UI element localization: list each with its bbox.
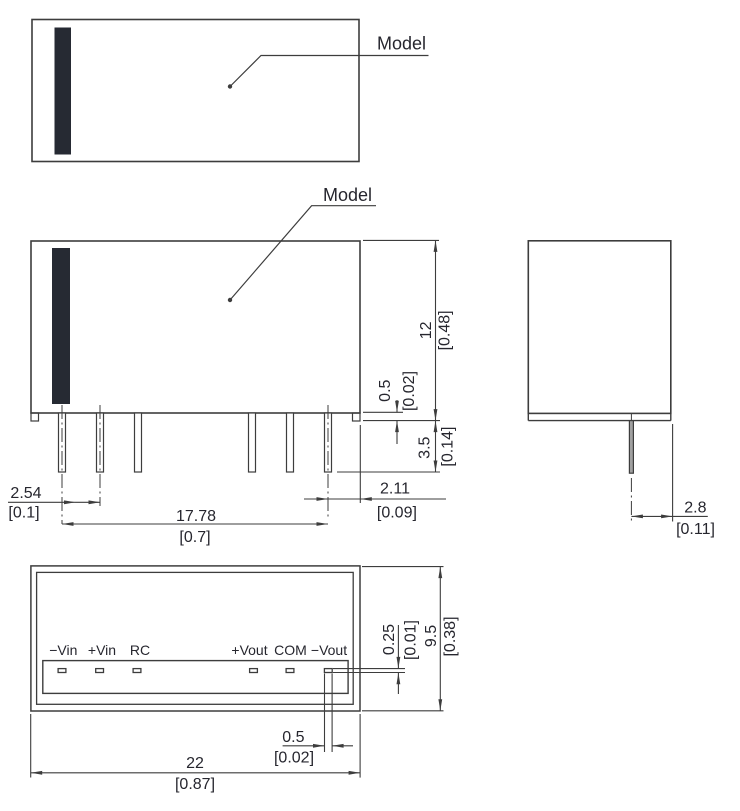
svg-text:12: 12 [418, 321, 435, 339]
svg-text:9.5: 9.5 [423, 625, 440, 647]
svg-text:17.78: 17.78 [176, 508, 216, 525]
svg-text:[0.01]: [0.01] [402, 620, 419, 660]
svg-text:2.54: 2.54 [10, 485, 41, 502]
svg-text:[0.87]: [0.87] [175, 776, 215, 793]
svg-text:2.8: 2.8 [684, 500, 706, 517]
svg-text:0.5: 0.5 [282, 729, 304, 746]
svg-text:+Vin: +Vin [88, 642, 116, 658]
svg-text:[0.02]: [0.02] [274, 750, 314, 767]
svg-text:[0.14]: [0.14] [440, 427, 457, 467]
svg-text:[0.11]: [0.11] [676, 521, 715, 538]
svg-text:−Vout: −Vout [311, 642, 347, 658]
svg-text:COM: COM [274, 642, 307, 658]
svg-text:RC: RC [130, 642, 150, 658]
svg-text:Model: Model [323, 185, 372, 205]
svg-text:+Vout: +Vout [231, 642, 267, 658]
svg-text:Model: Model [377, 34, 426, 54]
svg-text:[0.09]: [0.09] [377, 505, 417, 522]
svg-text:[0.38]: [0.38] [442, 616, 459, 656]
svg-text:0.25: 0.25 [381, 624, 398, 655]
svg-text:[0.7]: [0.7] [179, 529, 210, 546]
svg-text:22: 22 [186, 755, 204, 772]
svg-text:[0.1]: [0.1] [8, 505, 39, 522]
svg-text:[0.48]: [0.48] [437, 310, 454, 350]
svg-text:3.5: 3.5 [417, 436, 434, 458]
svg-text:−Vin: −Vin [49, 642, 77, 658]
svg-text:2.11: 2.11 [380, 481, 410, 498]
svg-text:0.5: 0.5 [377, 379, 394, 401]
svg-text:[0.02]: [0.02] [401, 371, 418, 411]
